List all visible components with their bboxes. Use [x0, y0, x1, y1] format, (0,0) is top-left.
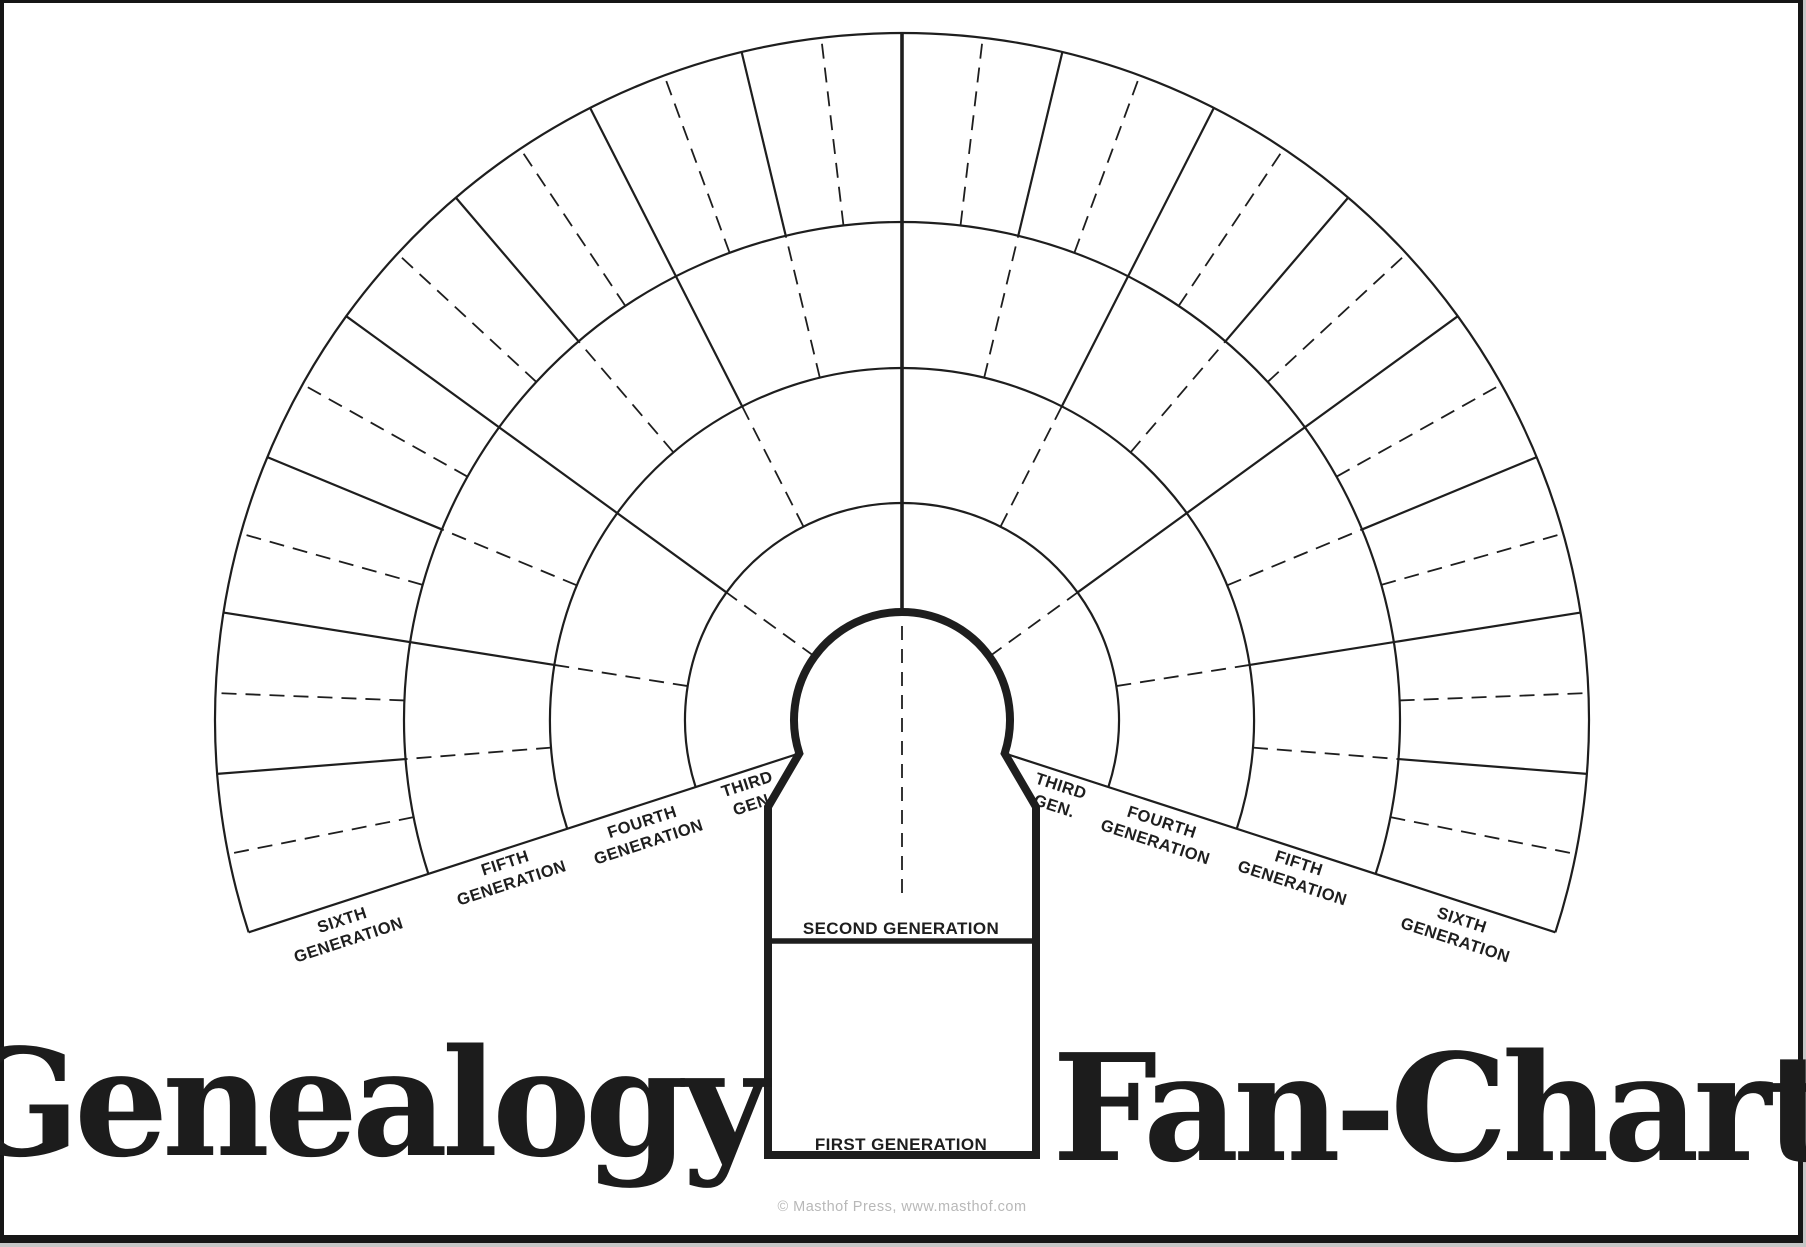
sector-line-dashed — [1227, 529, 1362, 585]
copyright-text: © Masthof Press, www.masthof.com — [777, 1199, 1026, 1215]
sector-line-solid — [217, 759, 405, 774]
sector-line-solid — [223, 613, 554, 665]
sector-line-dashed — [742, 406, 803, 526]
sector-line-dashed — [1179, 149, 1284, 306]
sector-line-dashed — [989, 592, 1077, 656]
sector-line-solid — [456, 198, 579, 342]
sector-line-dashed — [1268, 254, 1407, 382]
sector-line-dashed — [1337, 384, 1502, 476]
sector-line-dashed — [579, 341, 674, 452]
label-second-generation: SECOND GENERATION — [803, 919, 999, 939]
sector-line-dashed — [1253, 748, 1399, 759]
sector-line-dashed — [303, 384, 468, 476]
sector-line-solid — [267, 457, 442, 529]
sector-line-dashed — [664, 75, 729, 252]
sector-line-solid — [1250, 613, 1581, 665]
sector-line-solid — [1398, 759, 1586, 774]
generation-label: FOURTHGENERATION — [585, 796, 705, 868]
sector-line-dashed — [554, 665, 687, 686]
sector-line-solid — [1225, 198, 1348, 342]
sector-line-dashed — [1074, 75, 1139, 252]
fan-baseline — [249, 753, 800, 932]
sector-line-dashed — [961, 38, 983, 226]
sector-line-dashed — [1390, 817, 1575, 854]
title-fan-chart: Fan-Chart — [1052, 1034, 1806, 1182]
generation-label: FOURTHGENERATION — [1098, 796, 1218, 868]
sector-line-dashed — [228, 817, 413, 854]
sector-line-dashed — [398, 254, 537, 382]
sector-line-dashed — [1381, 534, 1563, 585]
sector-line-dashed — [406, 748, 552, 759]
sector-line-dashed — [984, 236, 1018, 378]
label-first-generation: FIRST GENERATION — [815, 1135, 987, 1155]
sector-line-dashed — [241, 534, 423, 585]
sector-line-dashed — [216, 693, 405, 700]
sector-line-dashed — [1116, 665, 1249, 686]
sector-line-dashed — [520, 149, 625, 306]
sector-line-dashed — [821, 38, 843, 226]
sector-line-solid — [742, 52, 786, 236]
page: THIRDGEN.THIRDGEN.FOURTHGENERATIONFOURTH… — [0, 0, 1806, 1247]
sector-line-solid — [1362, 457, 1537, 529]
generation-label: SIXTHGENERATION — [285, 894, 405, 966]
sector-line-dashed — [442, 529, 577, 585]
sector-line-dashed — [726, 592, 814, 656]
title-genealogy: Genealogy — [0, 1029, 762, 1177]
sector-line-dashed — [786, 236, 820, 378]
generation-label: SIXTHGENERATION — [1398, 894, 1518, 966]
sector-line-dashed — [1400, 693, 1589, 700]
fan-baseline — [1005, 753, 1556, 932]
sector-line-solid — [1018, 52, 1062, 236]
sector-line-dashed — [1001, 406, 1062, 526]
sector-line-dashed — [1131, 341, 1226, 452]
